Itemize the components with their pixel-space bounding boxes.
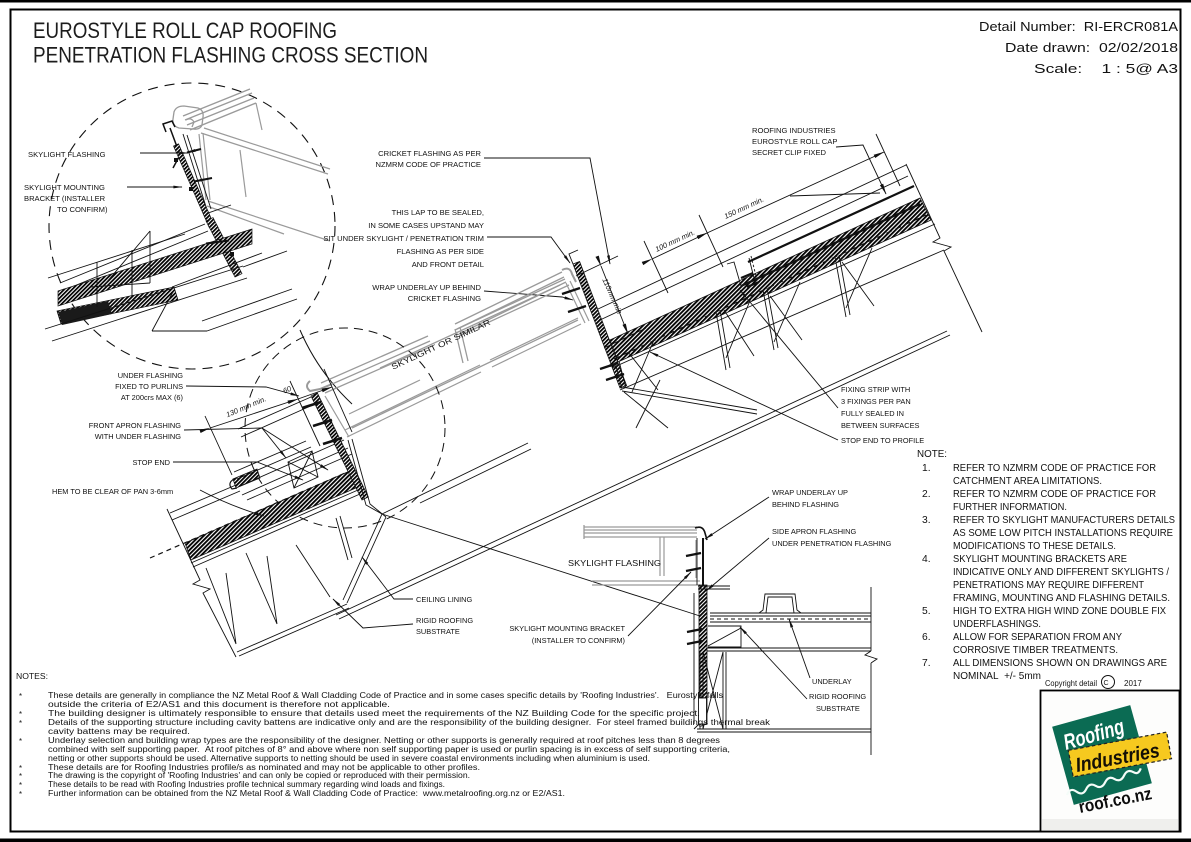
svg-text:TO CONFIRM): TO CONFIRM) bbox=[57, 205, 108, 214]
svg-text:SKYLIGHT FLASHING: SKYLIGHT FLASHING bbox=[28, 150, 106, 159]
svg-text:WRAP UNDERLAY UP: WRAP UNDERLAY UP bbox=[772, 488, 848, 497]
svg-text:Date drawn: 02/02/2018: Date drawn: 02/02/2018 bbox=[1005, 41, 1178, 55]
svg-text:WITH UNDER FLASHING: WITH UNDER FLASHING bbox=[95, 432, 181, 441]
svg-text:2.: 2. bbox=[922, 489, 931, 500]
svg-text:combined with self supporting: combined with self supporting paper. At … bbox=[48, 745, 730, 754]
svg-text:cavity battens may be required: cavity battens may be required. bbox=[48, 727, 190, 736]
svg-text:MODIFICATIONS TO THESE DETAILS: MODIFICATIONS TO THESE DETAILS. bbox=[953, 541, 1116, 552]
svg-text:NOMINAL +/- 5mm: NOMINAL +/- 5mm bbox=[953, 671, 1041, 682]
svg-text:*: * bbox=[19, 710, 22, 719]
svg-text:CRICKET FLASHING: CRICKET FLASHING bbox=[408, 294, 481, 303]
svg-text:FULLY SEALED IN: FULLY SEALED IN bbox=[841, 409, 904, 418]
svg-text:SKYLIGHT MOUNTING: SKYLIGHT MOUNTING bbox=[24, 183, 105, 192]
svg-text:FURTHER INFORMATION.: FURTHER INFORMATION. bbox=[953, 502, 1067, 513]
svg-text:Underlay selection and buildin: Underlay selection and building wrap typ… bbox=[48, 736, 720, 745]
svg-text:REFER TO SKYLIGHT MANUFACTURER: REFER TO SKYLIGHT MANUFACTURERS DETAILS bbox=[953, 515, 1175, 526]
svg-text:BEHIND FLASHING: BEHIND FLASHING bbox=[772, 500, 839, 509]
svg-text:WRAP UNDERLAY UP BEHIND: WRAP UNDERLAY UP BEHIND bbox=[372, 283, 481, 292]
svg-text:Scale: 1 : 5@ A3: Scale: 1 : 5@ A3 bbox=[1034, 62, 1178, 76]
svg-text:UNDER PENETRATION FLASHING: UNDER PENETRATION FLASHING bbox=[772, 539, 892, 548]
svg-text:UNDER FLASHING: UNDER FLASHING bbox=[118, 371, 184, 380]
svg-text:CRICKET FLASHING AS PER: CRICKET FLASHING AS PER bbox=[378, 149, 481, 158]
svg-text:EUROSTYLE ROLL CAP: EUROSTYLE ROLL CAP bbox=[752, 137, 837, 146]
svg-text:*: * bbox=[19, 737, 22, 746]
svg-text:Copyright detail: Copyright detail bbox=[1045, 679, 1097, 688]
svg-text:UNDERLAY: UNDERLAY bbox=[812, 677, 852, 686]
svg-text:NOTES:: NOTES: bbox=[16, 671, 48, 681]
svg-text:netting or other supports shou: netting or other supports should be used… bbox=[48, 754, 650, 763]
svg-text:outside the criteria of E2/AS1: outside the criteria of E2/AS1 and this … bbox=[48, 700, 390, 709]
svg-text:SKYLIGHT MOUNTING BRACKETS ARE: SKYLIGHT MOUNTING BRACKETS ARE bbox=[953, 554, 1127, 565]
svg-text:STOP END: STOP END bbox=[132, 458, 170, 467]
svg-text:FRONT APRON FLASHING: FRONT APRON FLASHING bbox=[89, 421, 182, 430]
svg-text:*: * bbox=[19, 790, 22, 799]
svg-text:SECRET CLIP FIXED: SECRET CLIP FIXED bbox=[752, 148, 827, 157]
svg-text:REFER TO NZMRM CODE OF PRACTIC: REFER TO NZMRM CODE OF PRACTICE FOR bbox=[953, 489, 1156, 500]
svg-text:AS SOME LOW PITCH INSTALLATION: AS SOME LOW PITCH INSTALLATIONS REQUIRE bbox=[953, 528, 1173, 539]
svg-text:PENETRATION FLASHING CROSS SEC: PENETRATION FLASHING CROSS SECTION bbox=[33, 43, 428, 68]
svg-text:Details of the supporting stru: Details of the supporting structure incl… bbox=[48, 718, 770, 727]
svg-text:3.: 3. bbox=[922, 515, 931, 526]
svg-text:AT 200crs MAX (6): AT 200crs MAX (6) bbox=[121, 393, 183, 402]
svg-text:BETWEEN SURFACES: BETWEEN SURFACES bbox=[841, 421, 920, 430]
svg-text:*: * bbox=[19, 692, 22, 701]
svg-text:FIXED TO PURLINS: FIXED TO PURLINS bbox=[115, 382, 183, 391]
svg-text:NZMRM CODE OF PRACTICE: NZMRM CODE OF PRACTICE bbox=[376, 160, 481, 169]
svg-text:2017: 2017 bbox=[1124, 679, 1142, 688]
svg-text:AND FRONT DETAIL: AND FRONT DETAIL bbox=[412, 260, 484, 269]
svg-text:PENETRATIONS MAY REQUIRE DIFFE: PENETRATIONS MAY REQUIRE DIFFERENT bbox=[953, 580, 1145, 591]
svg-text:CEILING LINING: CEILING LINING bbox=[416, 595, 473, 604]
svg-text:SKYLIGHT FLASHING: SKYLIGHT FLASHING bbox=[568, 558, 661, 568]
svg-text:REFER TO NZMRM CODE OF PRACTIC: REFER TO NZMRM CODE OF PRACTICE FOR bbox=[953, 463, 1156, 474]
svg-text:UNDERFLASHINGS.: UNDERFLASHINGS. bbox=[953, 619, 1041, 630]
svg-text:*: * bbox=[19, 719, 22, 728]
svg-text:STOP END TO PROFILE: STOP END TO PROFILE bbox=[841, 436, 924, 445]
svg-text:IN SOME CASES UPSTAND MAY: IN SOME CASES UPSTAND MAY bbox=[368, 221, 484, 230]
svg-text:CATCHMENT AREA LIMITATIONS.: CATCHMENT AREA LIMITATIONS. bbox=[953, 476, 1102, 487]
svg-text:The building designer is ultim: The building designer is ultimately resp… bbox=[48, 709, 700, 718]
svg-text:1.: 1. bbox=[922, 463, 931, 474]
svg-text:ALL DIMENSIONS SHOWN ON DRAWIN: ALL DIMENSIONS SHOWN ON DRAWINGS ARE bbox=[953, 658, 1167, 669]
svg-text:FRAMING, MOUNTING AND FLASHING: FRAMING, MOUNTING AND FLASHING DETAILS. bbox=[953, 593, 1170, 604]
svg-text:3 FIXINGS PER PAN: 3 FIXINGS PER PAN bbox=[841, 397, 911, 406]
svg-text:These details are generally in: These details are generally in complianc… bbox=[48, 691, 723, 700]
svg-text:THIS LAP TO BE SEALED,: THIS LAP TO BE SEALED, bbox=[392, 208, 484, 217]
svg-text:FLASHING AS PER SIDE: FLASHING AS PER SIDE bbox=[397, 247, 484, 256]
svg-text:SUBSTRATE: SUBSTRATE bbox=[816, 704, 860, 713]
svg-text:SUBSTRATE: SUBSTRATE bbox=[416, 627, 460, 636]
svg-text:Further information can be obt: Further information can be obtained from… bbox=[48, 789, 565, 798]
svg-text:INDICATIVE ONLY AND DIFFERENT: INDICATIVE ONLY AND DIFFERENT SKYLIGHTS … bbox=[953, 567, 1169, 578]
svg-text:4.: 4. bbox=[922, 554, 931, 565]
svg-text:These details to be read with: These details to be read with Roofing In… bbox=[48, 780, 445, 789]
svg-text:*: * bbox=[19, 772, 22, 781]
svg-text:BRACKET (INSTALLER: BRACKET (INSTALLER bbox=[24, 194, 106, 203]
svg-text:SIDE APRON FLASHING: SIDE APRON FLASHING bbox=[772, 527, 856, 536]
svg-text:ROOFING INDUSTRIES: ROOFING INDUSTRIES bbox=[752, 126, 836, 135]
svg-text:(INSTALLER TO CONFIRM): (INSTALLER TO CONFIRM) bbox=[532, 636, 625, 645]
svg-text:EUROSTYLE ROLL CAP ROOFING: EUROSTYLE ROLL CAP ROOFING bbox=[33, 18, 337, 43]
svg-text:NOTE:: NOTE: bbox=[917, 449, 947, 460]
svg-text:HIGH TO EXTRA HIGH WIND ZONE D: HIGH TO EXTRA HIGH WIND ZONE DOUBLE FIX bbox=[953, 606, 1166, 617]
svg-text:SIT UNDER SKYLIGHT / PENETRATI: SIT UNDER SKYLIGHT / PENETRATION TRIM bbox=[323, 234, 484, 243]
svg-text:5.: 5. bbox=[922, 606, 931, 617]
svg-text:FIXING STRIP WITH: FIXING STRIP WITH bbox=[841, 385, 910, 394]
svg-text:The drawing is the copyright o: The drawing is the copyright of 'Roofing… bbox=[48, 771, 470, 780]
svg-text:SKYLIGHT MOUNTING BRACKET: SKYLIGHT MOUNTING BRACKET bbox=[509, 624, 625, 633]
svg-text:RIGID ROOFING: RIGID ROOFING bbox=[416, 616, 473, 625]
svg-text:6.: 6. bbox=[922, 632, 931, 643]
svg-text:HEM TO BE CLEAR OF PAN 3-6mm: HEM TO BE CLEAR OF PAN 3-6mm bbox=[52, 487, 173, 496]
svg-text:C: C bbox=[1103, 680, 1108, 687]
svg-text:7.: 7. bbox=[922, 658, 931, 669]
svg-text:*: * bbox=[19, 781, 22, 790]
svg-text:Detail Number: RI-ERCR081A: Detail Number: RI-ERCR081A bbox=[979, 20, 1179, 34]
svg-text:RIGID ROOFING: RIGID ROOFING bbox=[809, 692, 866, 701]
svg-text:ALLOW FOR SEPARATION FROM ANY: ALLOW FOR SEPARATION FROM ANY bbox=[953, 632, 1122, 643]
svg-text:CORROSIVE TIMBER TREATMENTS.: CORROSIVE TIMBER TREATMENTS. bbox=[953, 645, 1118, 656]
